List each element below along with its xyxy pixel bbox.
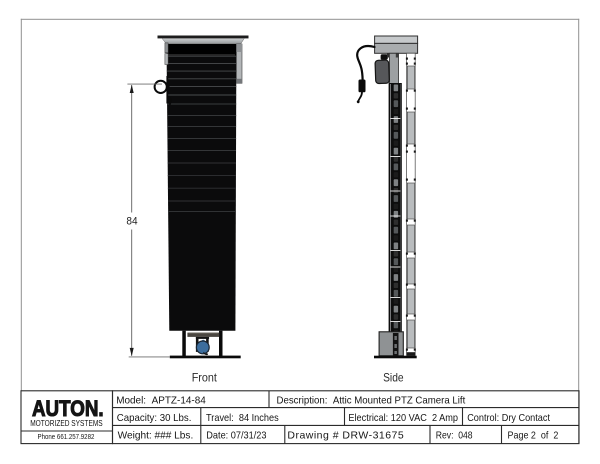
svg-text:Phone 661.257.9282: Phone 661.257.9282 [38, 432, 95, 441]
svg-text:Page 2 of 2: Page 2 of 2 [508, 430, 559, 442]
svg-text:Date: 07/31/23: Date: 07/31/23 [206, 430, 266, 442]
svg-text:Travel: 84 Inches: Travel: 84 Inches [206, 412, 279, 424]
svg-text:Capacity: 30 Lbs.: Capacity: 30 Lbs. [117, 412, 192, 424]
svg-text:Front: Front [192, 371, 218, 384]
svg-text:Weight: ### Lbs.: Weight: ### Lbs. [118, 430, 194, 442]
svg-text:Control: Dry Contact: Control: Dry Contact [467, 412, 550, 424]
svg-text:Drawing # DRW-31675: Drawing # DRW-31675 [287, 430, 403, 442]
svg-text:Description: Attic Mounted PT: Description: Attic Mounted PTZ Camera Li… [277, 394, 466, 406]
svg-text:Model: APTZ-14-84: Model: APTZ-14-84 [116, 394, 206, 406]
svg-text:Rev: 048: Rev: 048 [436, 430, 473, 442]
svg-text:MOTORIZED SYSTEMS: MOTORIZED SYSTEMS [30, 419, 103, 428]
svg-text:AUTON.: AUTON. [32, 396, 104, 421]
svg-text:84: 84 [126, 215, 137, 227]
svg-text:Electrical: 120 VAC 2 Amp: Electrical: 120 VAC 2 Amp [348, 412, 458, 424]
svg-text:Side: Side [383, 371, 404, 384]
